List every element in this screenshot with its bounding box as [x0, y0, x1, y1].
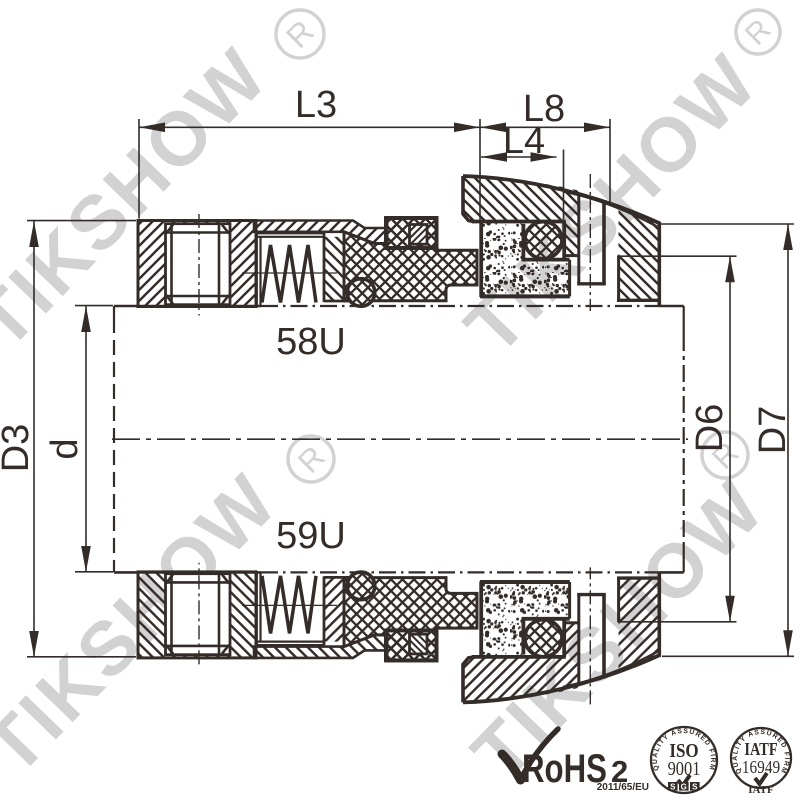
svg-text:S: S — [670, 783, 676, 792]
svg-text:9001: 9001 — [668, 758, 701, 780]
svg-text:D3: D3 — [0, 424, 37, 473]
svg-text:58U: 58U — [276, 321, 346, 363]
svg-text:S: S — [692, 783, 698, 792]
svg-text:16949: 16949 — [742, 757, 780, 777]
svg-text:D7: D7 — [752, 406, 794, 455]
svg-text:IATF: IATF — [748, 784, 774, 796]
svg-text:G: G — [681, 783, 687, 792]
svg-text:2011/65/EU: 2011/65/EU — [597, 782, 649, 793]
svg-text:L3: L3 — [295, 84, 337, 126]
svg-text:L4: L4 — [503, 120, 545, 162]
svg-text:d: d — [44, 438, 86, 459]
svg-text:D6: D6 — [689, 404, 731, 453]
svg-text:59U: 59U — [276, 515, 346, 557]
